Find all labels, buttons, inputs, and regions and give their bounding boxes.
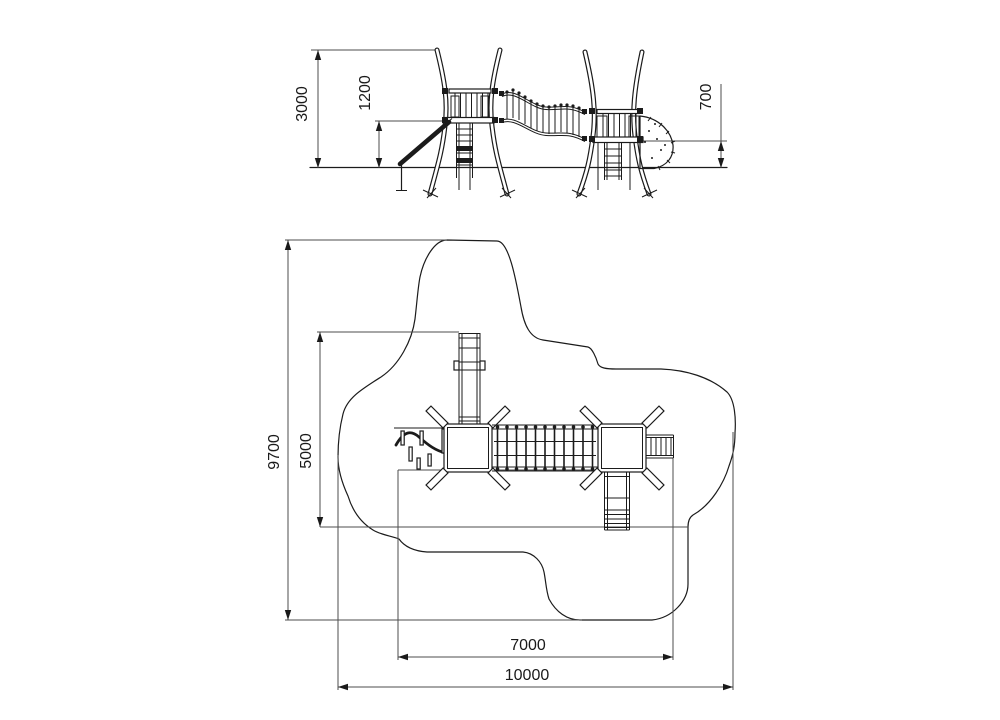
dimension-main-deck-height: 1200 — [357, 75, 446, 168]
dimension-zone-depth: 9700 — [266, 240, 291, 620]
dimension-equipment-depth: 5000 — [298, 332, 323, 527]
reference-lines — [285, 240, 733, 690]
net-verticals — [498, 427, 593, 469]
dimension-zone-width: 10000 — [338, 667, 733, 690]
left-guardrail-balusters — [451, 93, 489, 117]
dimension-low-deck-height: 700 — [642, 84, 727, 168]
right-tower — [572, 52, 657, 198]
post-anchor-feet — [572, 188, 657, 198]
dimension-label-3000: 3000 — [294, 86, 311, 122]
plan-climbing-wall — [394, 428, 446, 469]
right-guardrail — [597, 110, 639, 114]
left-access-ladder — [457, 123, 473, 190]
climbing-wall — [640, 116, 675, 170]
dimension-label-9700: 9700 — [266, 434, 283, 470]
drawing-sheet: 3000 1200 700 — [0, 0, 1000, 720]
plan-net-bridge — [492, 425, 598, 471]
right-access-ladder — [598, 143, 630, 191]
dimension-label-700: 700 — [698, 84, 715, 111]
dimension-label-5000: 5000 — [298, 433, 315, 469]
plan-ladder — [605, 472, 630, 530]
slide — [396, 119, 452, 191]
left-deck — [446, 118, 494, 124]
plan-stairs — [646, 435, 674, 458]
plan-view: 9700 5000 7000 10000 — [266, 240, 735, 690]
elevation-view: 3000 1200 700 — [294, 50, 727, 198]
dimension-equipment-width: 7000 — [398, 637, 673, 660]
post-anchor-feet — [423, 188, 515, 198]
technical-drawing: 3000 1200 700 — [0, 0, 1000, 720]
right-deck — [593, 137, 643, 143]
dimension-label-10000: 10000 — [505, 667, 550, 684]
rope-bridge — [499, 88, 587, 141]
dimension-label-1200: 1200 — [357, 75, 374, 111]
plan-slide — [454, 333, 485, 424]
dimension-label-7000: 7000 — [510, 637, 546, 654]
left-tower — [423, 50, 515, 198]
left-guardrail — [449, 89, 491, 93]
